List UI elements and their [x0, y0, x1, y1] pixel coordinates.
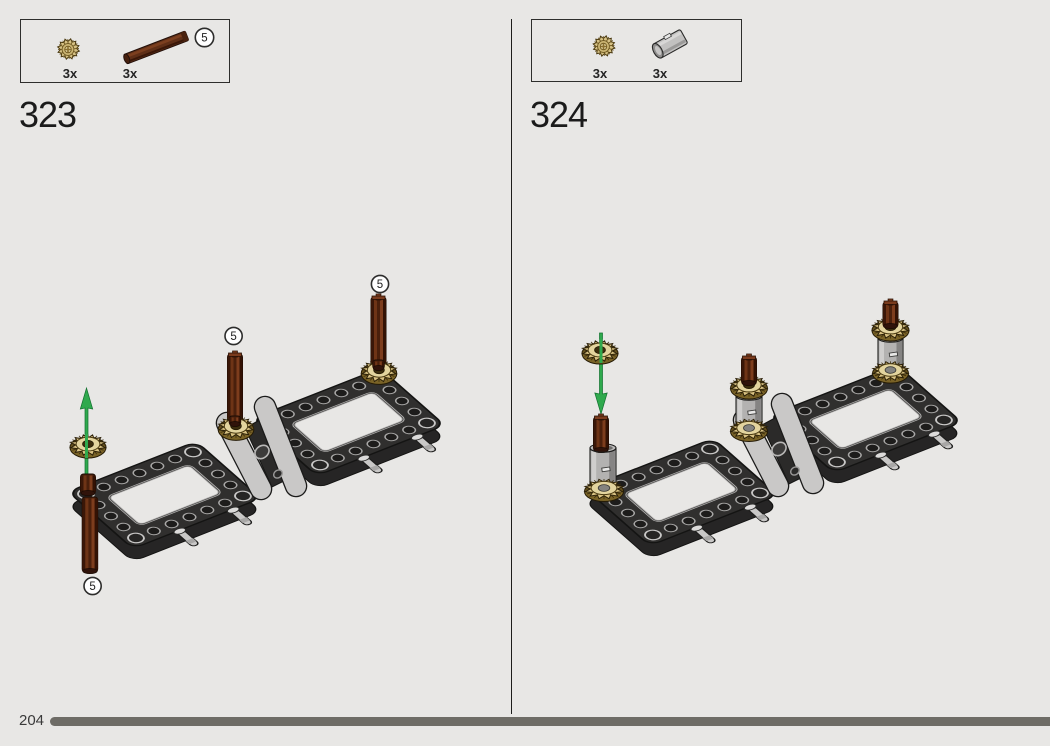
svg-text:3x: 3x — [123, 66, 138, 81]
svg-text:3x: 3x — [653, 66, 668, 81]
svg-text:5: 5 — [377, 279, 383, 291]
svg-text:5: 5 — [230, 331, 236, 343]
svg-text:5: 5 — [201, 33, 207, 45]
svg-text:3x: 3x — [593, 66, 608, 81]
svg-text:3x: 3x — [63, 66, 78, 81]
svg-text:5: 5 — [89, 581, 95, 593]
